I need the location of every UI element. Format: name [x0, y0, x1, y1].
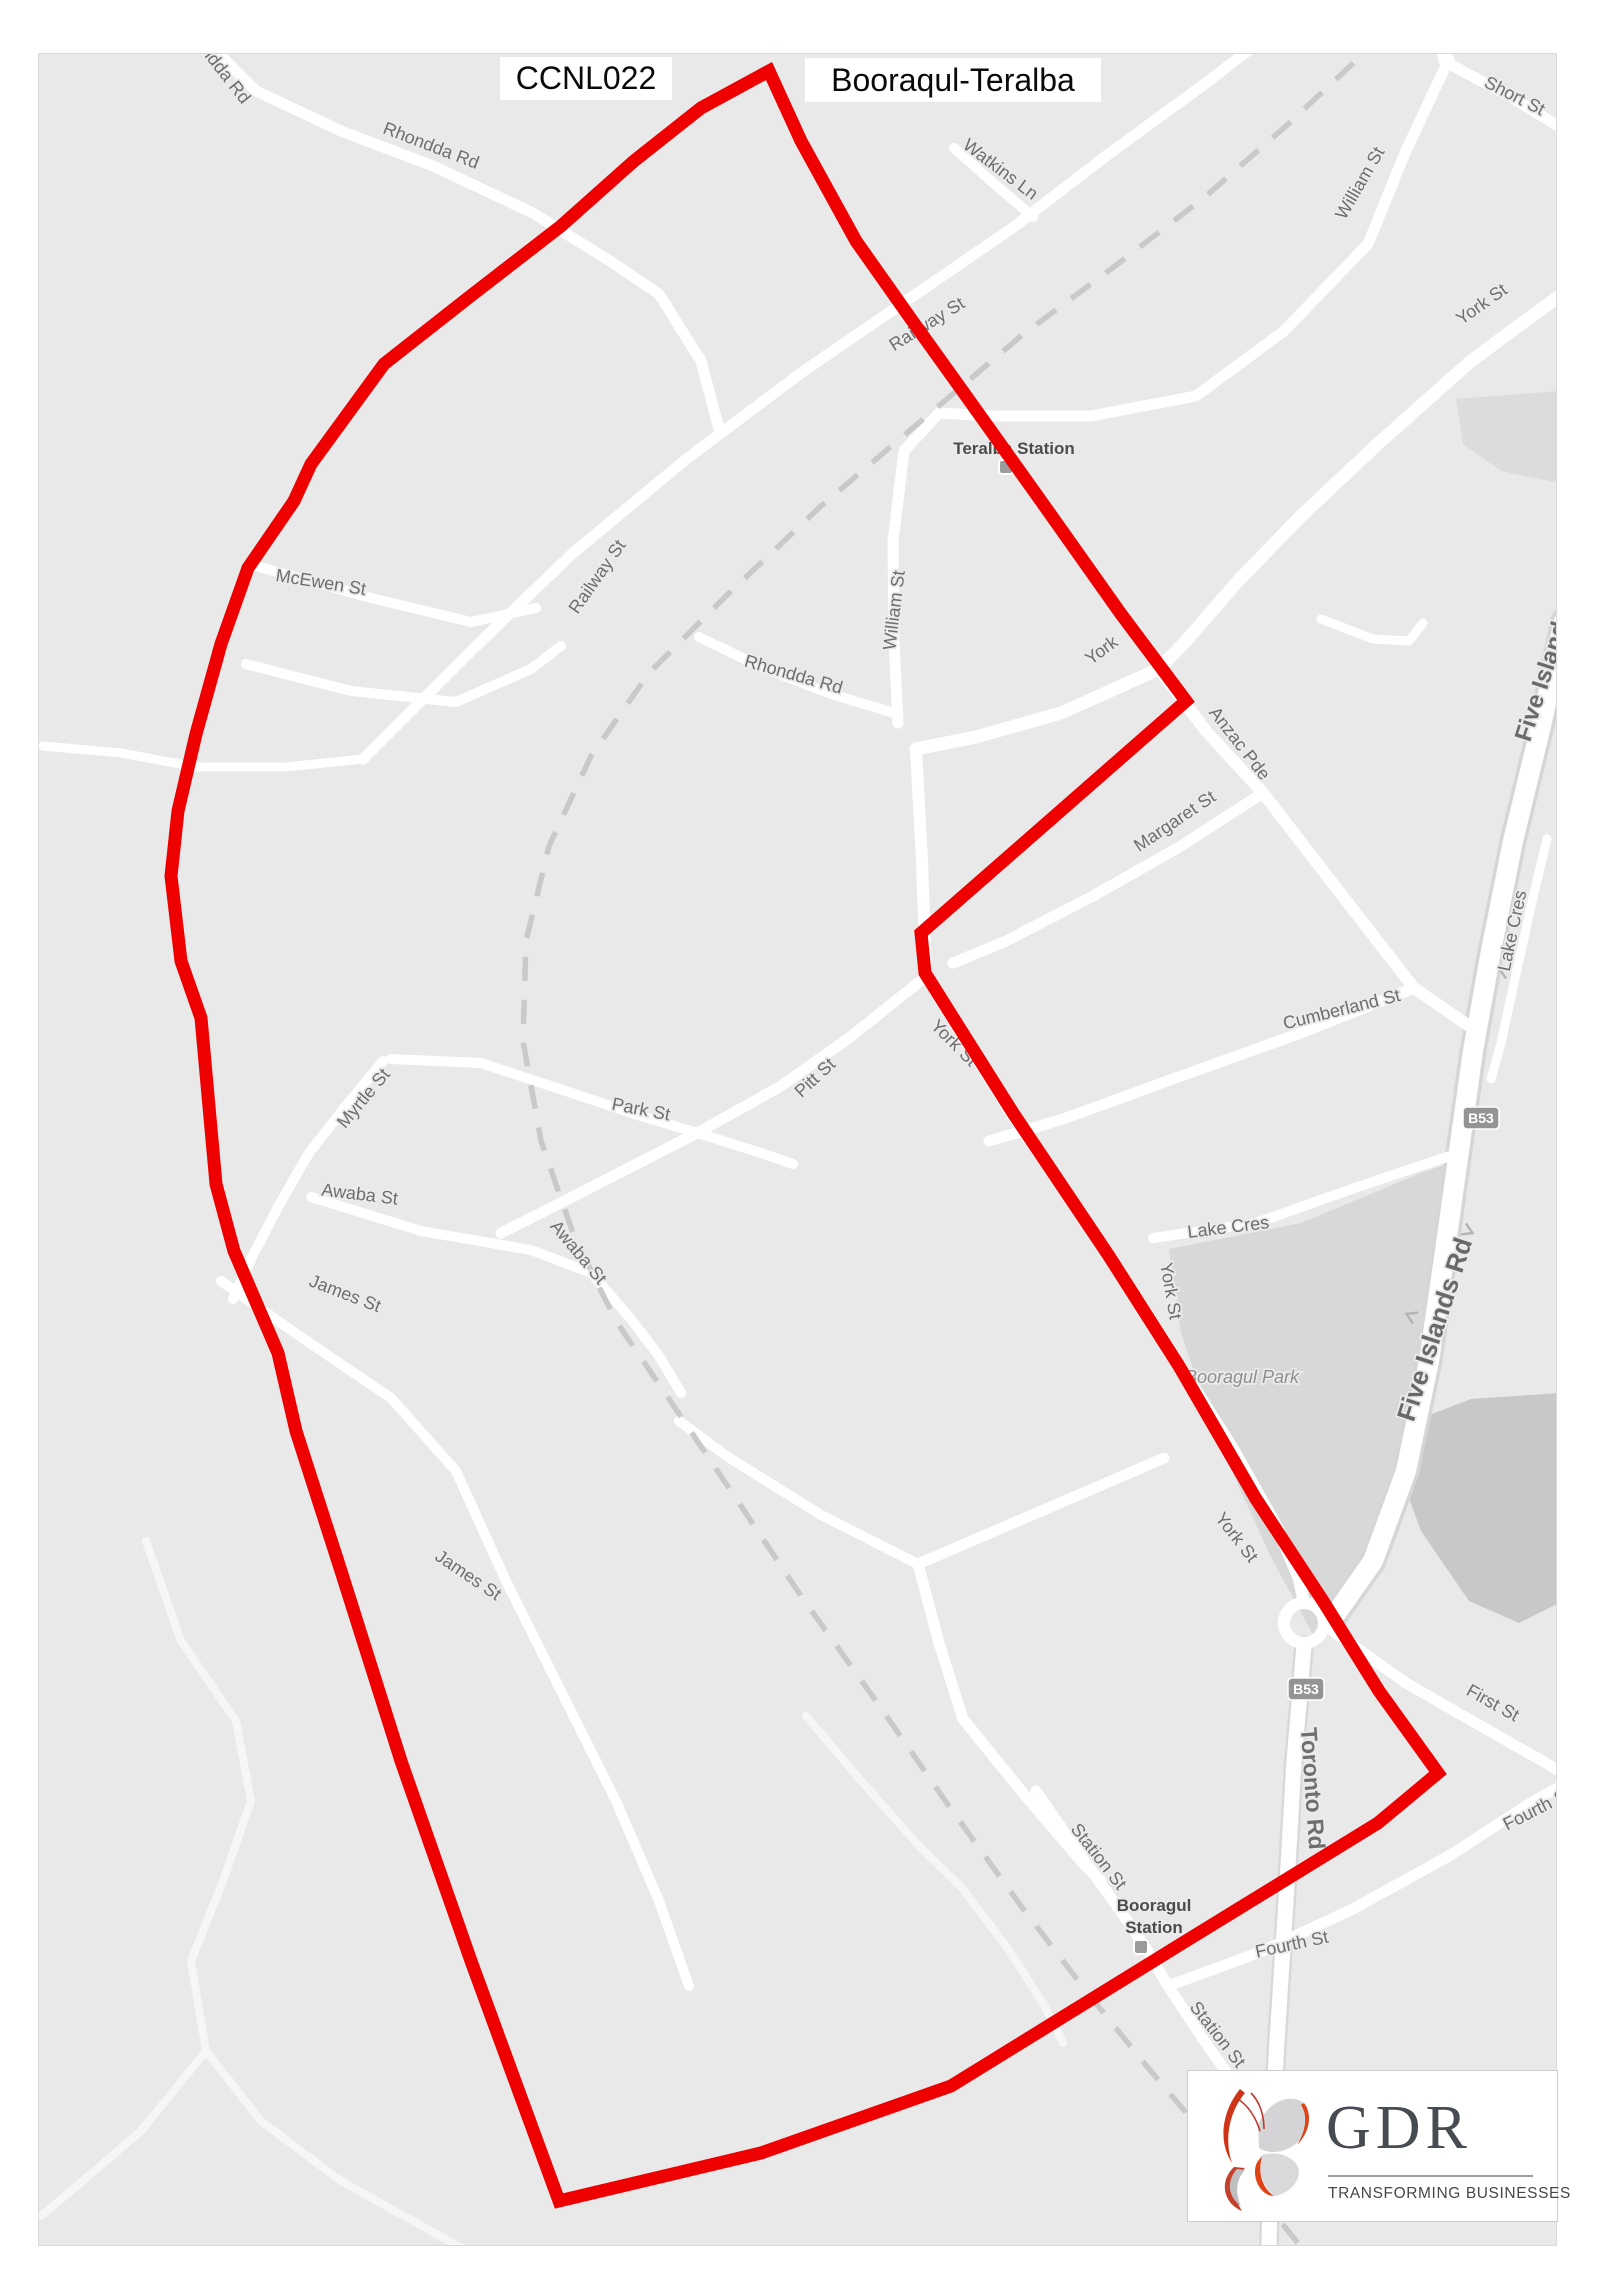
- road-margaret-st: [953, 793, 1263, 963]
- road-block-road: [918, 1458, 1164, 1881]
- gdr-logo: GDR TRANSFORMING BUSINESSES: [1187, 2070, 1558, 2222]
- map-canvas: Rhondda RdRhondda RdWatkins LnShort StWi…: [38, 53, 1557, 2246]
- road-sw-track-1: [146, 1541, 471, 2246]
- street-label: Rhondda Rd: [742, 651, 845, 698]
- road-rhondda-rd-top: [191, 54, 719, 429]
- road-mcewen-lower: [246, 646, 561, 702]
- street-label: Rhondda Rd: [177, 54, 255, 107]
- street-label: Fourth St: [1500, 1783, 1557, 1834]
- route-shield-label: B53: [1293, 1681, 1319, 1697]
- street-label: Booragul: [1117, 1896, 1192, 1915]
- map-title-code: CCNL022: [500, 57, 672, 100]
- road-fourth-st: [1168, 1783, 1557, 1986]
- road-sw-track-3: [806, 1716, 1063, 2043]
- street-label: York St: [1452, 279, 1510, 328]
- road-sw-track-2: [41, 2051, 206, 2216]
- street-label: York: [1081, 631, 1122, 669]
- page: Rhondda RdRhondda RdWatkins LnShort StWi…: [0, 0, 1614, 2283]
- street-label: Cumberland St: [1281, 985, 1402, 1033]
- street-label: Awaba St: [546, 1216, 611, 1288]
- street-label: Booragul Park: [1185, 1367, 1300, 1387]
- street-label: Toronto Rd: [1296, 1727, 1330, 1851]
- study-area-boundary: [171, 71, 1438, 2201]
- gdr-logo-text: GDR: [1326, 2093, 1472, 2164]
- butterfly-icon: [1210, 2085, 1322, 2211]
- oneway-arrow-icon: [1461, 1223, 1475, 1238]
- route-shield-label: B53: [1468, 1110, 1494, 1126]
- roundabout: [1284, 1603, 1324, 1643]
- road-hook-stub: [1321, 619, 1423, 641]
- road-pitt-st: [501, 979, 923, 1233]
- road-anzac-pde: [1159, 669, 1469, 1026]
- road-west-connector: [43, 746, 363, 767]
- map-title-name: Booraqul-Teralba: [805, 58, 1101, 102]
- gdr-logo-tagline: TRANSFORMING BUSINESSES: [1328, 2185, 1571, 2203]
- road-short-st-n: [1425, 54, 1444, 61]
- street-label: Short St: [1481, 72, 1548, 119]
- street-label: James St: [307, 1271, 384, 1317]
- street-label: Station: [1125, 1918, 1183, 1937]
- map-svg: Rhondda RdRhondda RdWatkins LnShort StWi…: [39, 54, 1557, 2246]
- station-icon: [1134, 1940, 1148, 1954]
- road-block-spur: [679, 1421, 918, 1564]
- street-label: Myrtle St: [333, 1065, 394, 1132]
- street-label: William St: [879, 569, 909, 651]
- area-top-right-patch: [1456, 391, 1557, 483]
- logo-divider: [1328, 2175, 1533, 2177]
- street-label: McEwen St: [274, 565, 367, 599]
- road-first-st: [1333, 1631, 1557, 1773]
